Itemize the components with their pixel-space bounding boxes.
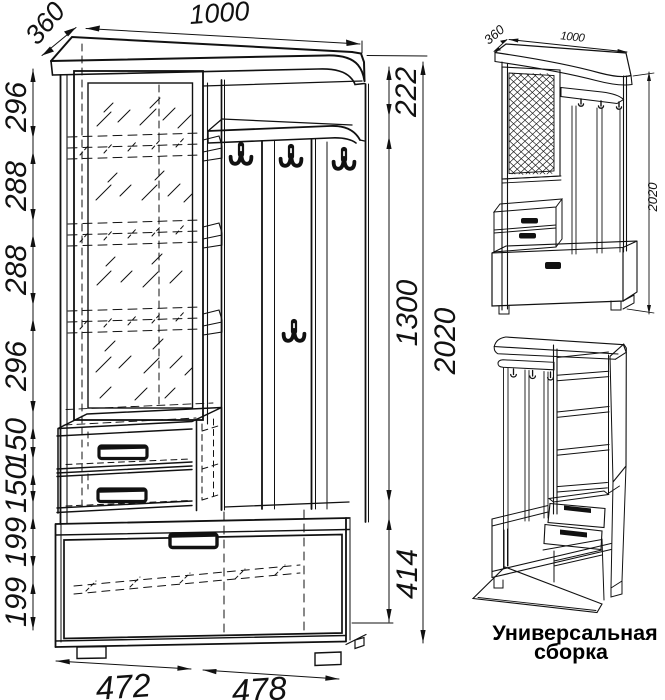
svg-text:296: 296 bbox=[0, 341, 33, 392]
svg-text:199: 199 bbox=[0, 517, 33, 567]
svg-text:150: 150 bbox=[0, 418, 33, 468]
svg-text:478: 478 bbox=[230, 669, 288, 700]
svg-text:414: 414 bbox=[391, 549, 424, 599]
svg-text:288: 288 bbox=[0, 161, 33, 212]
svg-text:296: 296 bbox=[0, 82, 33, 133]
svg-text:сборка: сборка bbox=[534, 640, 609, 664]
svg-text:1300: 1300 bbox=[391, 279, 424, 346]
svg-text:1000: 1000 bbox=[188, 0, 250, 30]
svg-text:2020: 2020 bbox=[645, 182, 660, 213]
svg-text:472: 472 bbox=[94, 666, 152, 700]
svg-text:288: 288 bbox=[0, 245, 33, 296]
svg-text:150: 150 bbox=[0, 463, 33, 513]
svg-text:2020: 2020 bbox=[429, 307, 462, 375]
svg-text:199: 199 bbox=[0, 577, 33, 627]
svg-text:222: 222 bbox=[390, 67, 423, 118]
